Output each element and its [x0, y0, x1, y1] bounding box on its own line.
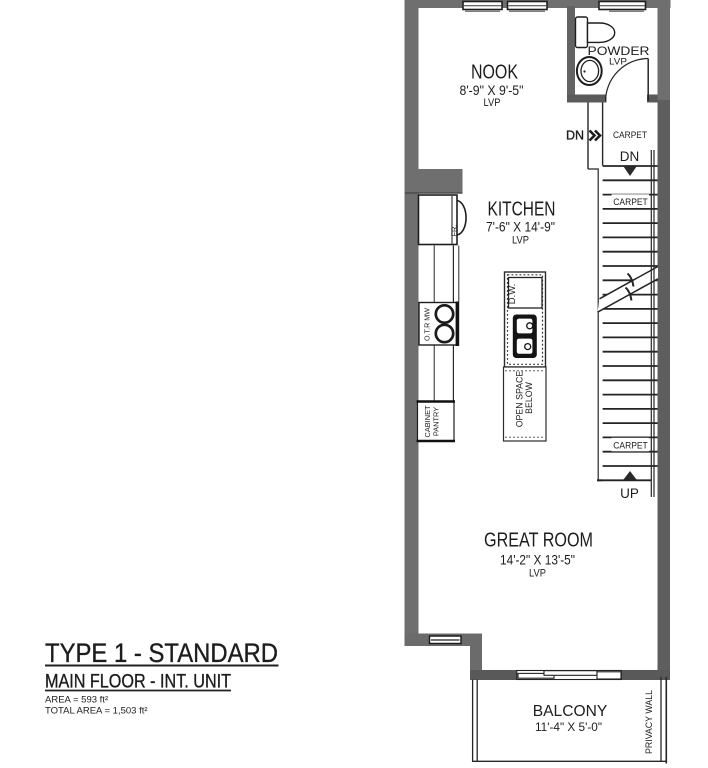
svg-text:PANTRY: PANTRY: [432, 407, 441, 436]
svg-text:LVP: LVP: [529, 568, 546, 580]
svg-text:DN: DN: [620, 149, 640, 164]
svg-text:DN: DN: [566, 129, 584, 143]
svg-text:BALCONY: BALCONY: [533, 703, 608, 720]
svg-text:8'-9" X 9'-5": 8'-9" X 9'-5": [460, 83, 524, 98]
svg-text:BELOW: BELOW: [524, 381, 534, 413]
svg-text:MAIN FLOOR - INT. UNIT: MAIN FLOOR - INT. UNIT: [45, 671, 231, 693]
svg-text:TYPE 1 - STANDARD: TYPE 1 - STANDARD: [45, 638, 278, 668]
svg-text:O.T.R MW: O.T.R MW: [423, 307, 432, 341]
svg-text:GREAT ROOM: GREAT ROOM: [484, 530, 593, 552]
svg-text:LVP: LVP: [484, 97, 501, 109]
svg-text:NOOK: NOOK: [471, 62, 519, 84]
svg-text:D.W.: D.W.: [507, 284, 518, 305]
svg-text:7'-6" X 14'-9": 7'-6" X 14'-9": [486, 220, 555, 235]
svg-text:11'-4" X 5'-0": 11'-4" X 5'-0": [535, 720, 602, 734]
svg-text:KITCHEN: KITCHEN: [488, 199, 556, 221]
svg-text:CARPET: CARPET: [613, 440, 648, 450]
svg-text:LVP: LVP: [512, 235, 529, 247]
svg-text:FR.: FR.: [450, 224, 459, 236]
svg-text:LVP: LVP: [609, 57, 627, 67]
svg-text:AREA = 593 ft²: AREA = 593 ft²: [45, 695, 108, 706]
svg-text:TOTAL AREA = 1,503 ft²: TOTAL AREA = 1,503 ft²: [45, 706, 148, 717]
svg-text:CARPET: CARPET: [613, 197, 648, 207]
svg-text:CARPET: CARPET: [613, 130, 647, 140]
svg-text:PRIVACY WALL: PRIVACY WALL: [644, 690, 654, 754]
svg-text:UP: UP: [620, 486, 639, 501]
svg-text:14'-2" X 13'-5": 14'-2" X 13'-5": [500, 553, 575, 568]
